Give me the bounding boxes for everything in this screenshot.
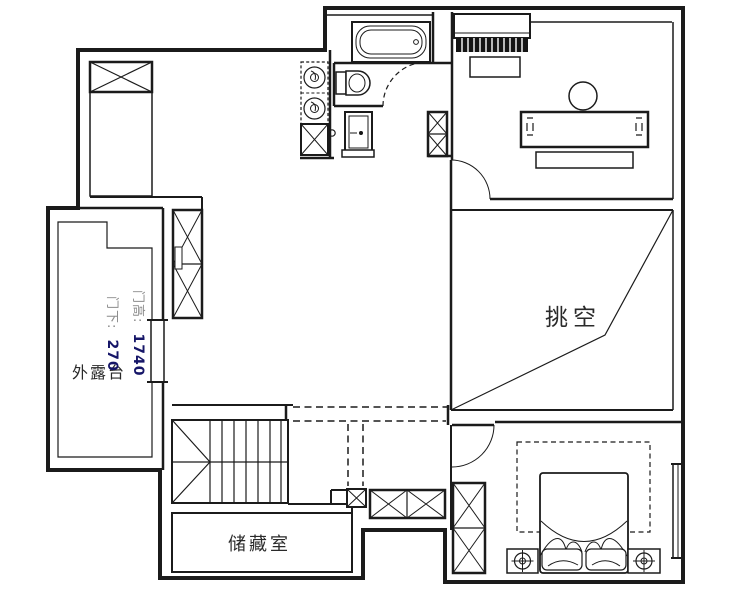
- bedroom-door: [452, 425, 494, 467]
- desk-icon: [521, 112, 648, 147]
- piano-icon: [454, 14, 530, 52]
- terrace-labels: 外露台 门高: 1740 门下: 270: [72, 290, 149, 382]
- toilet-icon: [336, 71, 370, 95]
- shaft-icon: [428, 112, 447, 156]
- terrace-door: [147, 320, 168, 382]
- hall-low-cabinets: [347, 489, 445, 518]
- washstand-icon: [342, 112, 374, 157]
- floor-plan: 挑空 储藏室: [0, 0, 740, 600]
- nightstand-lamp-icon: [507, 549, 538, 573]
- void-area: 挑空: [451, 210, 673, 410]
- pillow: [542, 549, 582, 570]
- nightstand-lamp-icon: [628, 549, 660, 573]
- stairs: [172, 420, 288, 503]
- storage-label: 储藏室: [228, 534, 291, 555]
- bed-icon: [540, 473, 628, 573]
- cabinet-icon: [347, 489, 366, 507]
- door-height-annotation: 门高: 1740: [130, 290, 149, 376]
- pillow: [586, 549, 626, 570]
- void-label: 挑空: [545, 305, 601, 331]
- piano-bench-icon: [470, 57, 520, 77]
- bedroom: [452, 425, 683, 573]
- closet-body: [90, 92, 152, 196]
- cabinet-icon: [301, 124, 328, 155]
- top-left-closet: [90, 62, 152, 196]
- bathtub-icon: [352, 22, 430, 62]
- storage-room: 储藏室: [172, 513, 352, 572]
- door-under-annotation: 门下: 270: [104, 296, 123, 372]
- bathroom: [336, 22, 447, 157]
- stool-icon: [569, 82, 597, 110]
- bathroom-door-arc: [383, 62, 427, 106]
- study-door: [451, 160, 490, 199]
- bookshelf-icon: [536, 152, 633, 168]
- wardrobe-icon: [90, 62, 152, 92]
- floor-plan-svg: 挑空 储藏室: [0, 0, 740, 600]
- cabinet-icon: [370, 490, 445, 518]
- hall-cabinet-icon: [173, 210, 202, 318]
- study-room: [451, 14, 648, 199]
- bedroom-wardrobe-icon: [453, 483, 485, 573]
- overhead-dashed-lines: [293, 407, 449, 486]
